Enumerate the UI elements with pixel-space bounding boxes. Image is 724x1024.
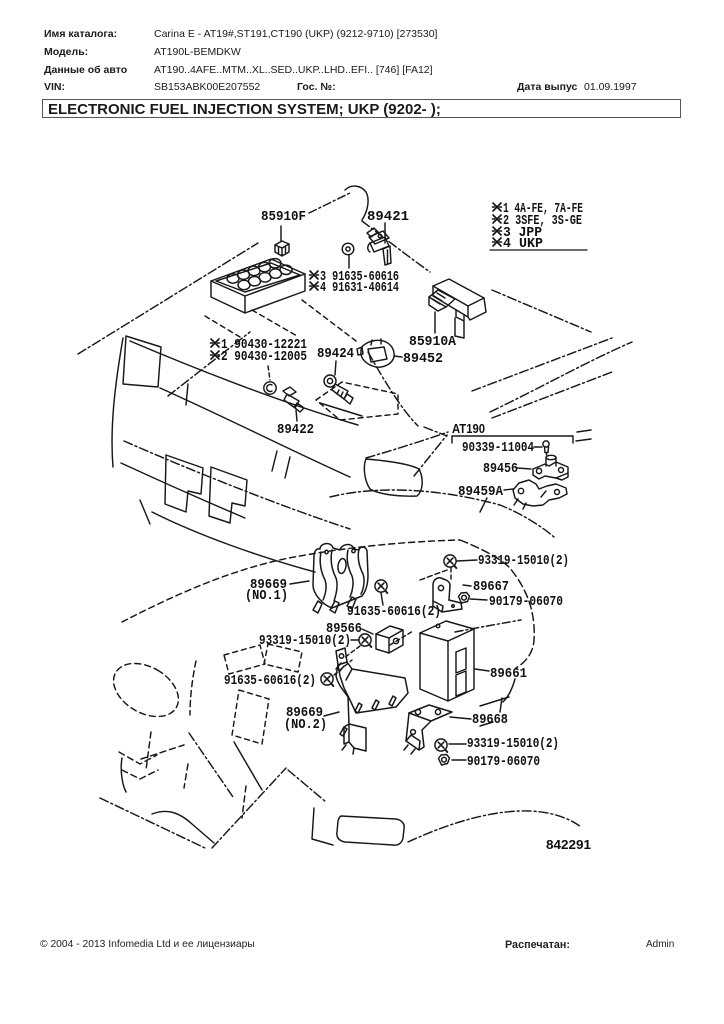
svg-text:89459A: 89459A [458,484,504,500]
svg-text:89424: 89424 [317,346,354,362]
svg-text:89452: 89452 [403,351,443,367]
svg-text:89661: 89661 [490,666,527,682]
svg-text:89668: 89668 [472,712,508,728]
svg-text:89421: 89421 [367,209,409,225]
svg-text:90179-06070: 90179-06070 [489,594,563,610]
svg-text:93319-15010(2): 93319-15010(2) [259,633,351,649]
svg-text:85910A: 85910A [409,334,457,350]
svg-text:(NO.2): (NO.2) [284,717,327,733]
svg-text:90339-11004: 90339-11004 [462,440,534,456]
svg-text:2 90430-12005: 2 90430-12005 [221,349,307,365]
svg-text:4 91631-40614: 4 91631-40614 [320,280,399,296]
svg-text:842291: 842291 [546,837,591,852]
svg-text:AT190: AT190 [452,422,485,436]
svg-text:91635-60616(2): 91635-60616(2) [224,673,316,689]
svg-text:85910F: 85910F [261,209,306,225]
svg-text:91635-60616(2): 91635-60616(2) [347,604,441,620]
svg-text:89422: 89422 [277,422,314,438]
svg-text:90179-06070: 90179-06070 [467,754,540,770]
svg-text:89667: 89667 [473,579,509,595]
svg-text:93319-15010(2): 93319-15010(2) [478,553,569,569]
svg-text:(NO.1): (NO.1) [245,588,288,604]
svg-text:93319-15010(2): 93319-15010(2) [467,736,559,752]
svg-text:89456: 89456 [483,461,518,477]
